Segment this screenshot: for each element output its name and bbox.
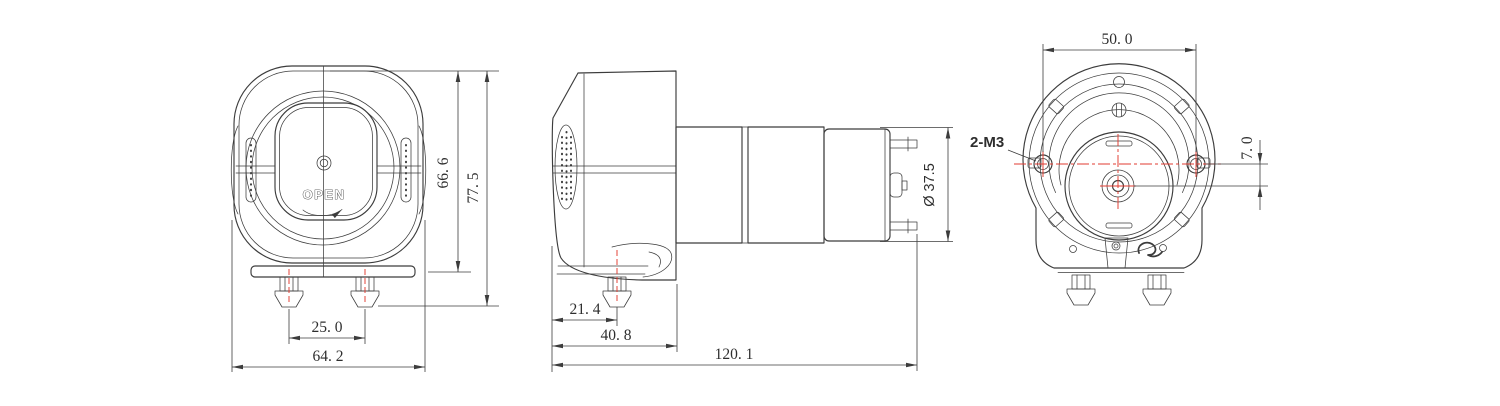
side-dimensions: 21. 4 40. 8 120. 1 Ø 37.5: [552, 128, 953, 373]
side-grip-texture: [555, 125, 577, 209]
left-latch-grip: [246, 138, 256, 202]
right-latch-grip: [401, 138, 411, 202]
left-latch-wing: [231, 126, 238, 214]
front-bottom-plate: [251, 266, 415, 277]
bayonet-slots: [1028, 98, 1210, 227]
brand-swirl-icon: [1138, 243, 1162, 257]
dim-head-depth: 40. 8: [601, 327, 632, 344]
open-label: OPEN: [303, 187, 346, 202]
dim-port-spacing: 25. 0: [312, 319, 343, 336]
back-right-hose-barb: [1143, 275, 1171, 305]
back-view: 50. 0 2-M3 7. 0: [970, 31, 1268, 305]
back-dimensions: 50. 0 2-M3 7. 0: [970, 31, 1268, 210]
motor-terminals: [890, 137, 917, 233]
dim-overall-length: 120. 1: [715, 346, 754, 363]
gearbox-body: [748, 127, 824, 243]
gearbox-and-motor: [676, 127, 917, 243]
pump-head-cover: [275, 103, 377, 220]
dim-body-height: 66. 6: [435, 157, 452, 188]
outlet-spout: [612, 243, 672, 277]
thread-callout: 2-M3: [970, 134, 1004, 151]
gearbox-flange: [676, 127, 742, 243]
dim-overall-height: 77. 5: [465, 172, 482, 203]
dim-shaft-offset: 7. 0: [1239, 136, 1256, 160]
dim-overall-width: 64. 2: [313, 348, 344, 365]
dim-port-offset: 21. 4: [570, 301, 601, 318]
drawing-canvas: OPEN 66. 6 77. 5 25. 0 64. 2: [0, 0, 1500, 406]
dim-motor-diameter: Ø 37.5: [922, 163, 938, 207]
side-view: 21. 4 40. 8 120. 1 Ø 37.5: [552, 71, 953, 372]
vent-slot-bottom: [1106, 223, 1132, 228]
top-index-hole: [1114, 77, 1125, 88]
pump-dimension-drawing: OPEN 66. 6 77. 5 25. 0 64. 2: [0, 0, 1500, 406]
front-view: OPEN 66. 6 77. 5 25. 0 64. 2: [231, 66, 499, 372]
motor-can: [824, 129, 890, 241]
dim-mount-hole-spacing: 50. 0: [1102, 31, 1133, 48]
motor-end-boss: [890, 173, 907, 197]
back-left-hose-barb: [1067, 275, 1095, 305]
thread-callout-leader: [1008, 150, 1036, 161]
right-latch-wing: [419, 126, 426, 214]
vent-slot-top: [1106, 141, 1132, 146]
